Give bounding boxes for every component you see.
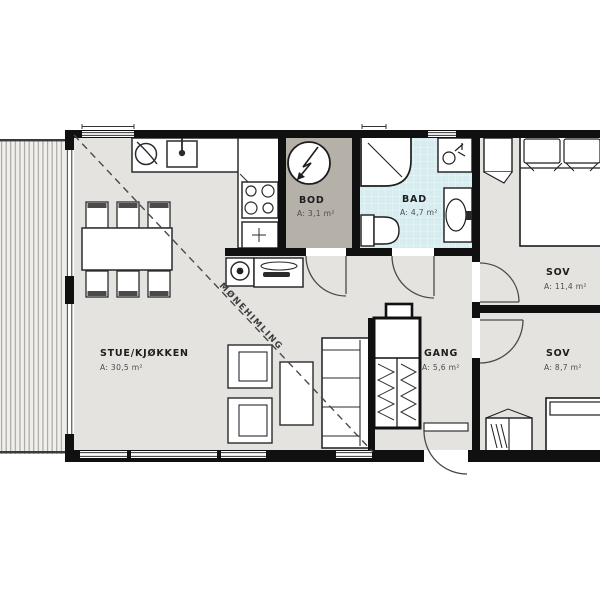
dining-set: [82, 202, 172, 297]
toilet-bowl-icon: [374, 217, 399, 244]
wall-segment: [65, 130, 74, 150]
washing-machine-box: [438, 138, 472, 172]
pillow: [550, 402, 600, 415]
sofa: [322, 338, 370, 448]
floor-plan-drawing: MØNEHIMLING STUE/KJØKKEN A: 30,5 m² BOD …: [0, 0, 600, 600]
chair-backrest: [150, 291, 169, 296]
room-label-bad: BAD: [402, 194, 427, 205]
window: [80, 451, 266, 458]
floor-plan-canvas: MØNEHIMLING STUE/KJØKKEN A: 30,5 m² BOD …: [0, 0, 600, 600]
chair-backrest: [88, 291, 107, 296]
pillow: [564, 139, 600, 163]
deck-edge-bottom: [0, 451, 66, 453]
room-area-bod: A: 3,1 m²: [297, 209, 335, 218]
hall-closet: [374, 304, 420, 428]
room-label-gang: GANG: [424, 348, 458, 359]
door-opening: [472, 262, 480, 302]
entrance-opening: [424, 450, 468, 462]
drainer-icon: [263, 272, 290, 277]
window-wall-left: [65, 130, 74, 462]
window: [82, 131, 134, 137]
dining-table: [82, 228, 172, 270]
window-mullion: [217, 451, 221, 460]
deck-terrace: [0, 139, 66, 454]
room-label-stue-kjokken: STUE/KJØKKEN: [100, 348, 189, 359]
room-area-gang: A: 5,6 m²: [422, 363, 460, 372]
basin-tap-icon: [466, 211, 473, 220]
wall-interior-horizontal: [225, 248, 480, 256]
chair-backrest: [119, 291, 138, 296]
sink-bowl-icon: [136, 144, 157, 165]
wall-bod-right: [352, 130, 360, 256]
door-opening: [306, 248, 346, 256]
armchair-seat: [239, 405, 267, 436]
window-mullion: [127, 451, 131, 460]
basin-drain-icon: [180, 151, 185, 156]
pillow: [524, 139, 560, 163]
room-label-sov-1: SOV: [546, 267, 570, 278]
round-hob-center-icon: [237, 268, 244, 275]
room-area-sov-2: A: 8,7 m²: [544, 363, 582, 372]
chair-backrest: [119, 203, 138, 208]
toilet-tank-icon: [361, 215, 374, 246]
wall-between-bedrooms: [472, 305, 600, 313]
window: [428, 131, 456, 137]
door-opening: [472, 318, 480, 358]
wall-exterior-top: [66, 130, 600, 138]
wall-segment: [65, 434, 74, 462]
wall-segment: [65, 276, 74, 304]
chair-backrest: [88, 203, 107, 208]
door-opening: [392, 248, 434, 256]
deck-edge-top: [0, 139, 66, 141]
room-area-sov-1: A: 11,4 m²: [544, 282, 587, 291]
room-area-bad: A: 4,7 m²: [400, 208, 438, 217]
water-heater-icon: [288, 142, 330, 184]
wardrobe: [484, 138, 512, 172]
armchair-seat: [239, 352, 267, 381]
deck-planks: [0, 140, 66, 454]
storage-room: [288, 142, 330, 184]
room-label-bod: BOD: [299, 195, 325, 206]
room-area-stue-kjokken: A: 30,5 m²: [100, 363, 143, 372]
entrance-door-leaf: [424, 423, 468, 431]
wall-bod-left: [278, 130, 286, 256]
window: [336, 451, 372, 458]
room-label-sov-2: SOV: [546, 348, 570, 359]
chair-backrest: [150, 203, 169, 208]
